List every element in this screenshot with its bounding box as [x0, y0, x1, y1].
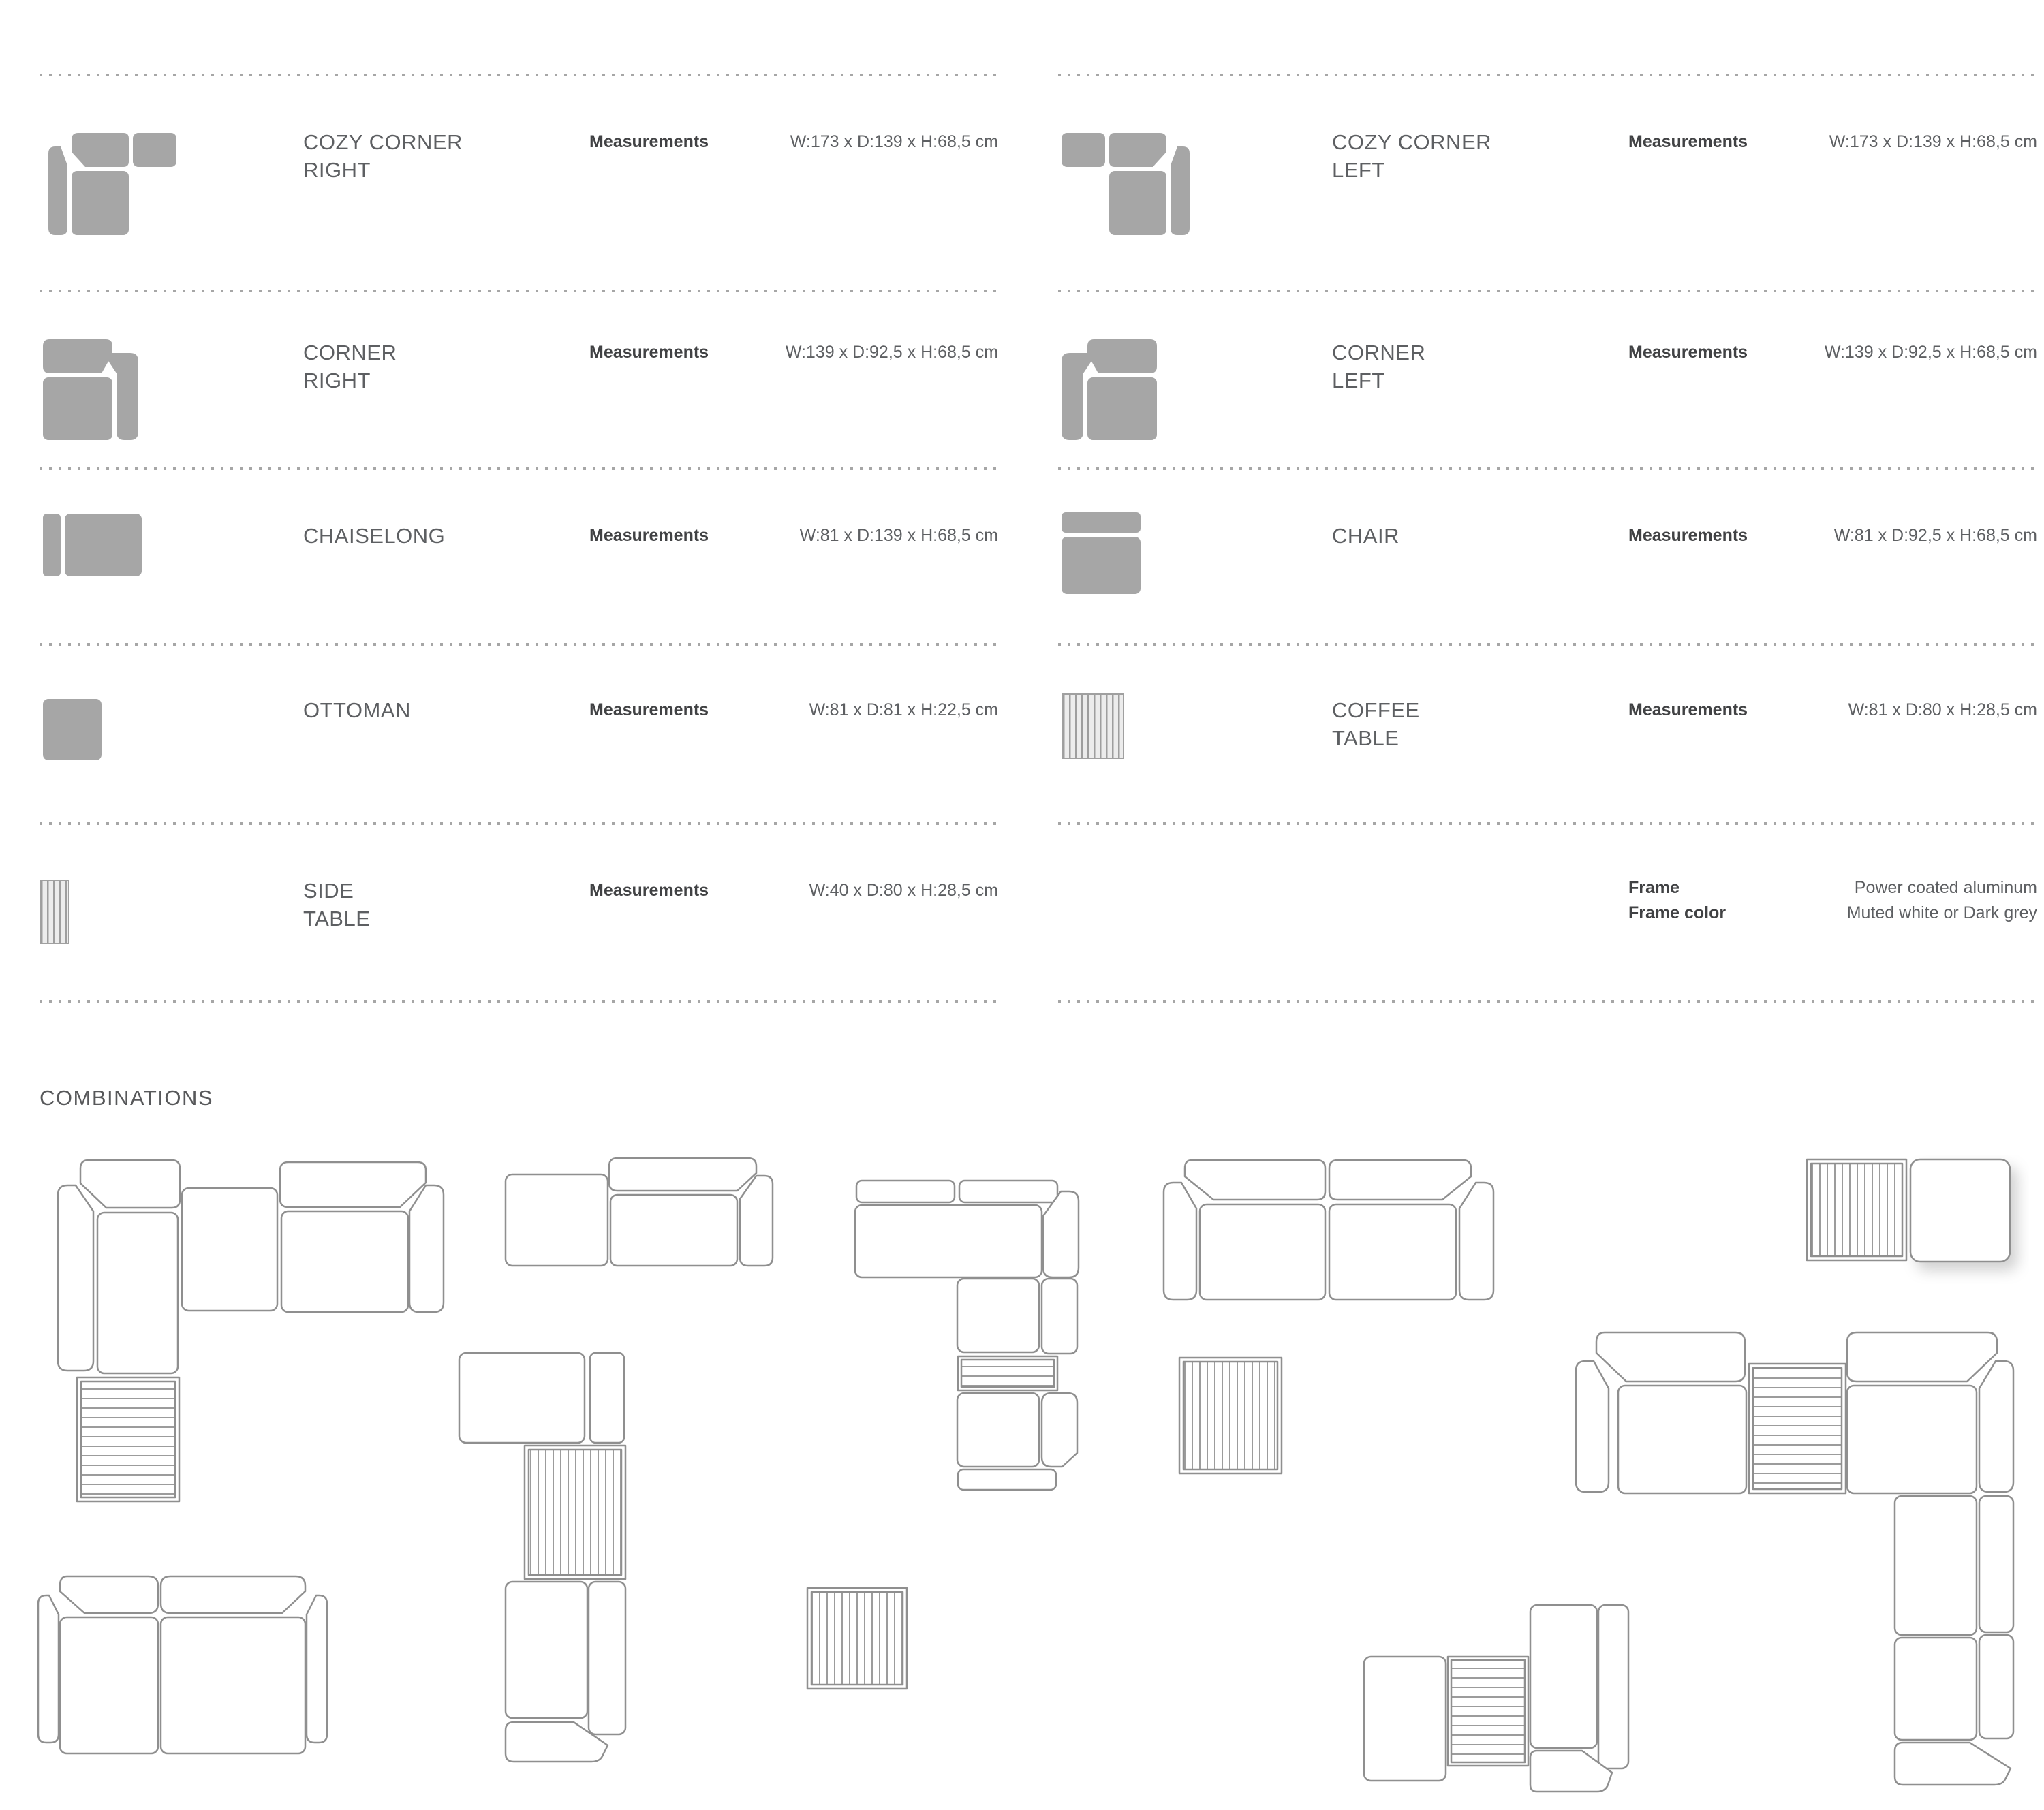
combination-diagram-2 — [504, 1157, 777, 1271]
product-name: CHAISELONG — [303, 522, 445, 550]
corner-right-icon — [43, 339, 138, 443]
product-row-cozy-corner-right: COZY CORNER RIGHT Measurements W:173 x D… — [40, 74, 998, 290]
product-name-line1: COZY CORNER — [303, 128, 463, 156]
product-name-line1: CORNER — [303, 339, 397, 366]
combination-diagram-8 — [1361, 1601, 1634, 1800]
product-name-line2: RIGHT — [303, 156, 463, 184]
measurements-value: W:139 x D:92,5 x H:68,5 cm — [617, 341, 998, 364]
catalog-page: COZY CORNER RIGHT Measurements W:173 x D… — [0, 0, 2044, 1810]
chaiselong-icon — [43, 514, 142, 580]
product-name: SIDE TABLE — [303, 877, 370, 933]
product-name-line2: LEFT — [1332, 156, 1491, 184]
measurements-value: W:139 x D:92,5 x H:68,5 cm — [1656, 341, 2037, 364]
product-name: CORNER LEFT — [1332, 339, 1425, 394]
product-name-line2: TABLE — [303, 905, 370, 933]
product-name-line1: SIDE — [303, 877, 370, 905]
product-name: OTTOMAN — [303, 696, 411, 724]
measurements-value: W:173 x D:139 x H:68,5 cm — [617, 131, 998, 153]
cozy-corner-right-icon — [43, 133, 176, 238]
product-name-line1: CORNER — [1332, 339, 1425, 366]
dotted-divider — [1058, 1000, 2037, 1003]
frame-color-value: Muted white or Dark grey — [1656, 901, 2037, 926]
measurements-value: W:81 x D:92,5 x H:68,5 cm — [1656, 525, 2037, 547]
product-row-coffee-table: COFFEE TABLE Measurements W:81 x D:80 x … — [1058, 643, 2037, 822]
dotted-divider — [40, 1000, 998, 1003]
ottoman-icon — [43, 699, 102, 760]
product-row-side-table: SIDE TABLE Measurements W:40 x D:80 x H:… — [40, 822, 998, 1000]
cozy-corner-left-icon — [1062, 133, 1195, 238]
measurements-value: W:173 x D:139 x H:68,5 cm — [1656, 131, 2037, 153]
product-row-cozy-corner-left: COZY CORNER LEFT Measurements W:173 x D:… — [1058, 74, 2037, 290]
product-name-line1: OTTOMAN — [303, 696, 411, 724]
measurements-value: W:81 x D:80 x H:28,5 cm — [1656, 699, 2037, 721]
combination-diagram-1 — [37, 1150, 480, 1511]
product-name-line1: CHAISELONG — [303, 522, 445, 550]
measurements-value: W:40 x D:80 x H:28,5 cm — [617, 879, 998, 902]
product-name: CORNER RIGHT — [303, 339, 397, 394]
combination-diagram-4 — [804, 1175, 1094, 1693]
product-name-line1: COZY CORNER — [1332, 128, 1491, 156]
product-name-line1: CHAIR — [1332, 522, 1399, 550]
product-row-corner-right: CORNER RIGHT Measurements W:139 x D:92,5… — [40, 290, 998, 467]
product-name-line2: RIGHT — [303, 366, 397, 394]
product-name-line2: TABLE — [1332, 724, 1420, 752]
combination-diagram-3 — [455, 1350, 630, 1767]
product-name-line2: LEFT — [1332, 366, 1425, 394]
measurements-value: W:81 x D:139 x H:68,5 cm — [617, 525, 998, 547]
combination-diagram-9 — [35, 1572, 330, 1760]
coffee-table-icon — [1062, 693, 1124, 759]
frame-info-block: Frame Frame color Power coated aluminum … — [1058, 822, 2037, 1000]
product-name: COZY CORNER LEFT — [1332, 128, 1491, 184]
product-name: COZY CORNER RIGHT — [303, 128, 463, 184]
measurements-value: W:81 x D:81 x H:22,5 cm — [617, 699, 998, 721]
combination-diagram-5 — [1162, 1158, 1499, 1478]
product-row-corner-left: CORNER LEFT Measurements W:139 x D:92,5 … — [1058, 290, 2037, 467]
product-row-chair: CHAIR Measurements W:81 x D:92,5 x H:68,… — [1058, 467, 2037, 643]
product-name: COFFEE TABLE — [1332, 696, 1420, 752]
corner-left-icon — [1062, 339, 1157, 443]
product-name: CHAIR — [1332, 522, 1399, 550]
frame-values: Power coated aluminum Muted white or Dar… — [1656, 875, 2037, 926]
product-name-line1: COFFEE — [1332, 696, 1420, 724]
combinations-heading: COMBINATIONS — [40, 1086, 213, 1110]
frame-value: Power coated aluminum — [1656, 875, 2037, 901]
combination-diagram-6 — [1804, 1155, 2029, 1284]
side-table-icon — [40, 880, 69, 944]
combination-diagram-7 — [1570, 1330, 2020, 1807]
product-row-ottoman: OTTOMAN Measurements W:81 x D:81 x H:22,… — [40, 643, 998, 822]
chair-icon — [1062, 512, 1141, 597]
product-row-chaiselong: CHAISELONG Measurements W:81 x D:139 x H… — [40, 467, 998, 643]
